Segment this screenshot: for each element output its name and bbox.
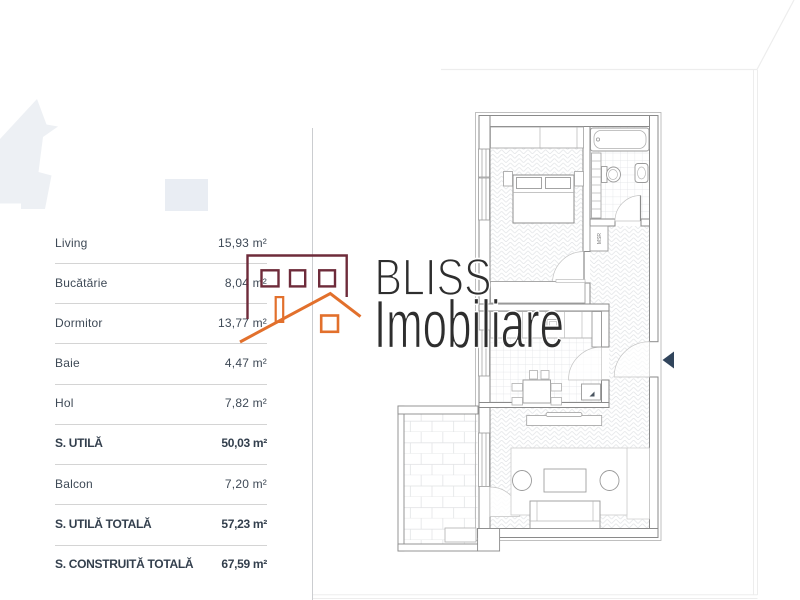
svg-text:MSR: MSR [597,233,603,245]
svg-text:Imobiliare: Imobiliare [374,287,564,354]
